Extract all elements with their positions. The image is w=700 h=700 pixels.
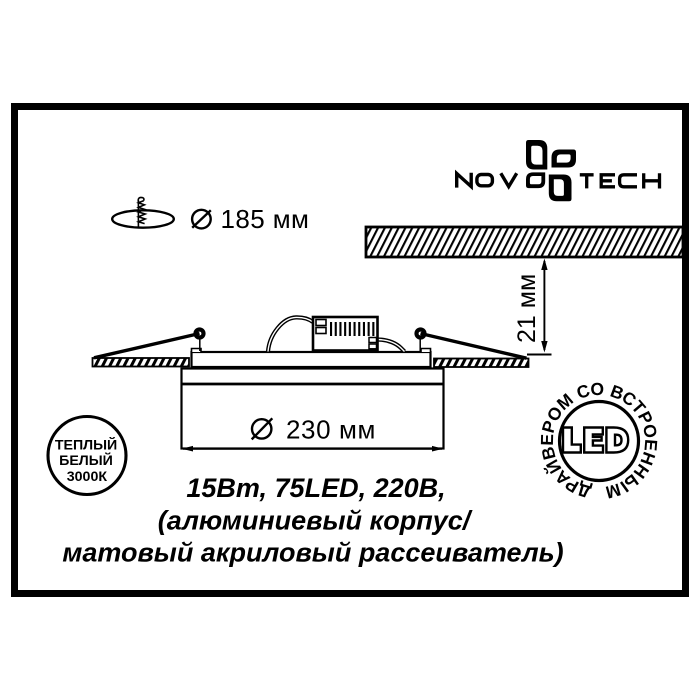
svg-text:БЕЛЫЙ: БЕЛЫЙ	[59, 451, 113, 469]
svg-text:21 мм: 21 мм	[513, 274, 541, 343]
svg-text:185 мм: 185 мм	[221, 204, 310, 234]
svg-text:ТЕПЛЫЙ: ТЕПЛЫЙ	[55, 436, 117, 454]
svg-text:3000К: 3000К	[67, 469, 108, 485]
svg-text:15Вт, 75LED, 220В,: 15Вт, 75LED, 220В,	[186, 473, 445, 503]
svg-text:230 мм: 230 мм	[286, 414, 376, 444]
svg-text:матовый акриловый рассеиватель: матовый акриловый рассеиватель)	[62, 538, 563, 568]
svg-text:(алюминиевый корпус/: (алюминиевый корпус/	[158, 506, 473, 536]
